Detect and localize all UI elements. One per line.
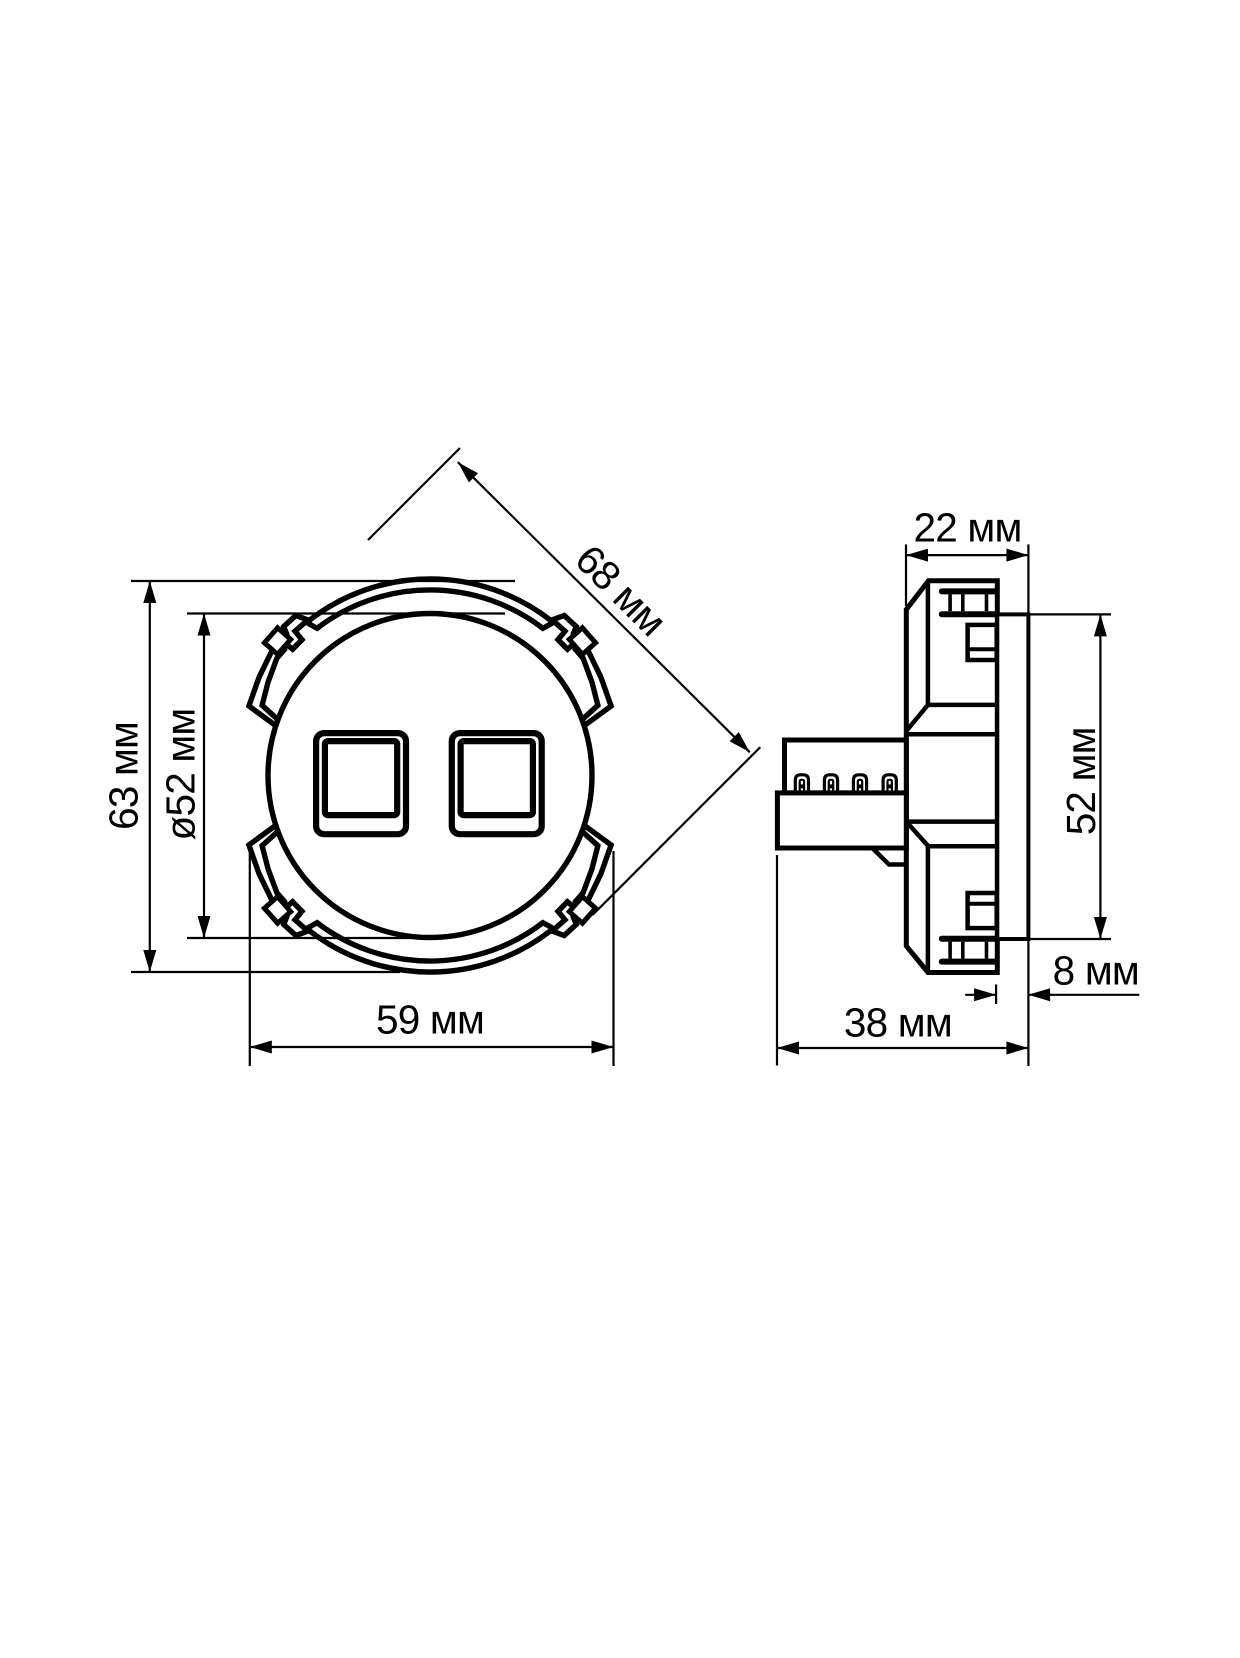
svg-text:8 мм: 8 мм <box>1053 948 1139 994</box>
svg-text:52 мм: 52 мм <box>1058 727 1104 835</box>
svg-text:59 мм: 59 мм <box>376 997 484 1043</box>
svg-text:38 мм: 38 мм <box>844 999 952 1045</box>
svg-text:ø52 мм: ø52 мм <box>158 709 204 841</box>
svg-text:22 мм: 22 мм <box>914 505 1022 551</box>
svg-text:63 мм: 63 мм <box>100 722 146 830</box>
